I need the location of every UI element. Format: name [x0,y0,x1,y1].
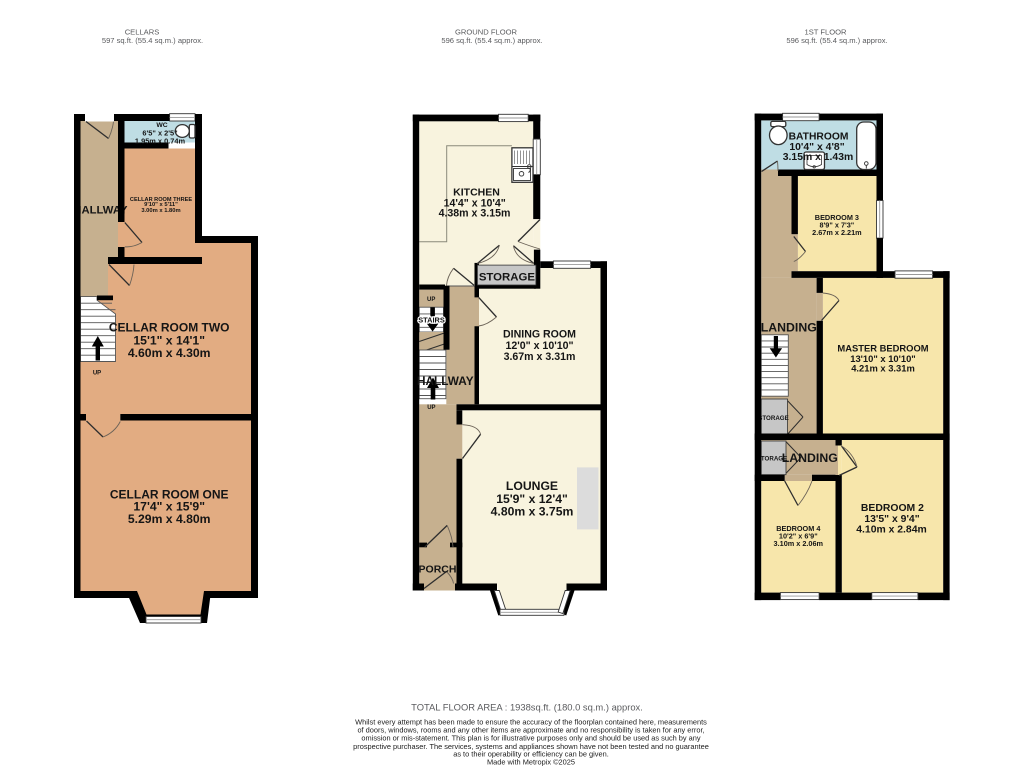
svg-text:4.60m x 4.30m: 4.60m x 4.30m [128,346,211,360]
svg-text:3.15m x 1.43m: 3.15m x 1.43m [783,152,853,163]
svg-text:1.95m x 0.74m: 1.95m x 0.74m [135,137,186,146]
svg-text:Made with Metropix ©2025: Made with Metropix ©2025 [487,758,575,766]
svg-text:5.29m x 4.80m: 5.29m x 4.80m [128,512,211,526]
svg-text:3.00m x 1.80m: 3.00m x 1.80m [141,208,180,214]
svg-text:LANDING: LANDING [782,451,838,465]
svg-text:4.21m x 3.31m: 4.21m x 3.31m [851,363,915,374]
svg-text:CELLAR ROOM TWO: CELLAR ROOM TWO [109,321,230,335]
svg-text:3.10m x 2.06m: 3.10m x 2.06m [774,539,824,548]
svg-text:596 sq.ft. (55.4 sq.m.) approx: 596 sq.ft. (55.4 sq.m.) approx. [441,36,542,45]
svg-text:BATHROOM: BATHROOM [789,131,849,142]
svg-text:DINING ROOM: DINING ROOM [503,329,576,341]
svg-text:STORAGE: STORAGE [479,272,536,284]
svg-text:UP: UP [427,297,435,303]
svg-text:4.10m x 2.84m: 4.10m x 2.84m [856,524,926,535]
svg-text:596 sq.ft. (55.4 sq.m.) approx: 596 sq.ft. (55.4 sq.m.) approx. [786,36,887,45]
svg-text:LANDING: LANDING [761,320,817,334]
svg-text:STAIRS: STAIRS [418,315,445,324]
svg-text:STORAGE: STORAGE [758,415,788,422]
svg-text:HALLWAY: HALLWAY [417,374,474,388]
svg-text:12'0" x 10'10": 12'0" x 10'10" [505,340,573,352]
svg-text:LOUNGE: LOUNGE [506,479,558,493]
svg-text:597 sq.ft. (55.4 sq.m.) approx: 597 sq.ft. (55.4 sq.m.) approx. [102,36,203,45]
svg-text:UP: UP [93,371,101,377]
svg-text:4.38m x 3.15m: 4.38m x 3.15m [439,207,511,219]
svg-text:BEDROOM 2: BEDROOM 2 [861,503,924,514]
svg-text:PORCH: PORCH [419,563,457,575]
svg-text:4.80m x 3.75m: 4.80m x 3.75m [491,504,574,518]
svg-text:2.67m x 2.21m: 2.67m x 2.21m [812,228,862,237]
svg-text:UP: UP [427,405,435,411]
svg-text:TOTAL FLOOR AREA : 1938sq.ft.: TOTAL FLOOR AREA : 1938sq.ft. (180.0 sq.… [411,701,643,712]
svg-text:3.67m x 3.31m: 3.67m x 3.31m [504,351,576,363]
